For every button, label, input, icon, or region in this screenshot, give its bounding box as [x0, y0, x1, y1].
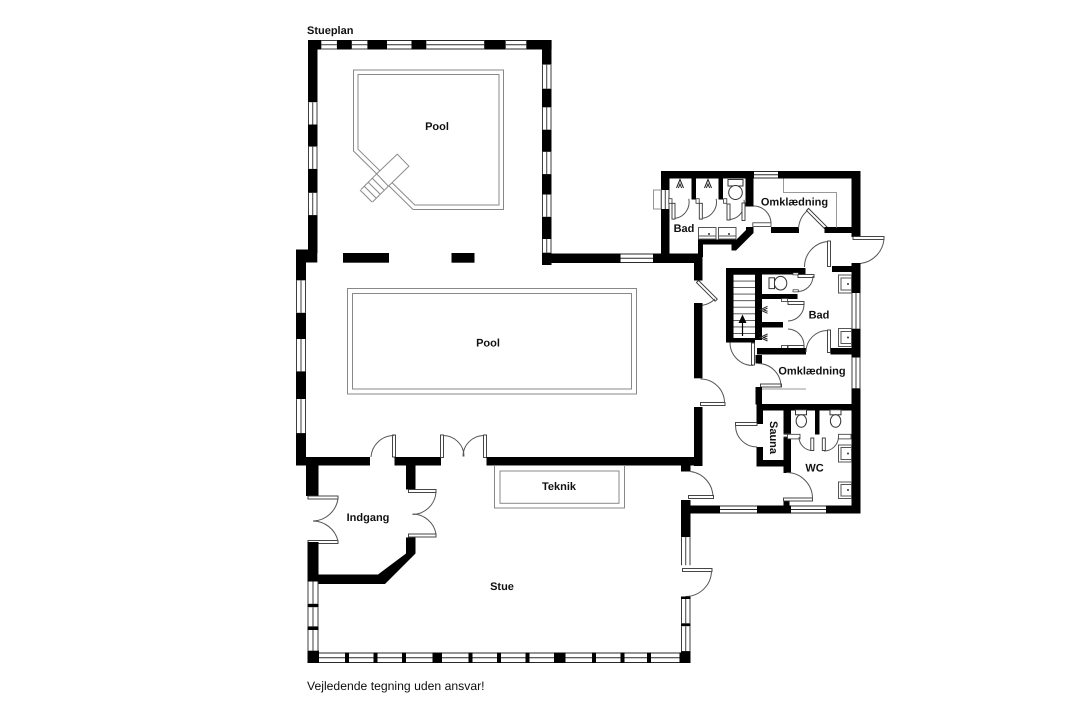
svg-text:Stue: Stue	[490, 581, 514, 593]
svg-text:Indgang: Indgang	[347, 512, 390, 524]
svg-text:Bad: Bad	[674, 223, 695, 235]
svg-text:Stueplan: Stueplan	[307, 25, 354, 37]
svg-text:Pool: Pool	[425, 121, 449, 133]
svg-text:Sauna: Sauna	[767, 421, 779, 455]
svg-text:Omklædning: Omklædning	[778, 366, 845, 378]
svg-text:WC: WC	[805, 463, 823, 475]
svg-text:Teknik: Teknik	[542, 481, 577, 493]
svg-text:Vejledende tegning uden ansvar: Vejledende tegning uden ansvar!	[307, 679, 485, 693]
svg-text:Bad: Bad	[809, 310, 830, 322]
svg-text:Omklædning: Omklædning	[761, 197, 828, 209]
svg-text:Pool: Pool	[476, 338, 500, 350]
